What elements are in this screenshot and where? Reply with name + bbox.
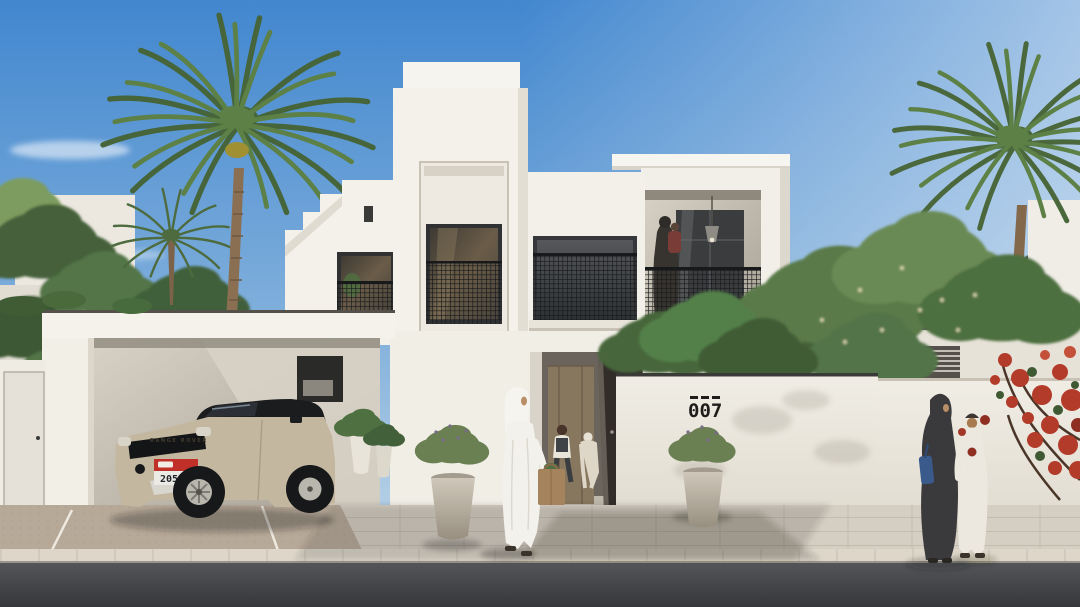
car-shadow	[110, 508, 334, 532]
carport-beam	[42, 312, 395, 338]
carport-pillar	[42, 338, 94, 512]
child-head	[671, 223, 679, 231]
wall-coping	[616, 373, 878, 377]
house-number-sign: 007	[688, 396, 722, 422]
tower-window	[426, 224, 502, 324]
sandal	[521, 551, 532, 556]
entry-wall: 007	[616, 373, 878, 515]
center-juliet-balcony	[529, 236, 641, 331]
door-handle	[36, 436, 40, 440]
side-mirror	[290, 416, 302, 423]
headlight-right	[196, 427, 211, 436]
headlight-left	[118, 437, 131, 446]
scene-canvas: 007	[0, 0, 1080, 607]
left-boundary-wall	[0, 360, 46, 512]
architectural-rendering: 007	[0, 0, 1080, 607]
villa-tower	[393, 62, 528, 352]
side-door	[4, 372, 44, 512]
window-railing-mesh	[337, 282, 395, 314]
road	[0, 562, 1080, 607]
sandal	[505, 546, 516, 551]
left-wing-window	[337, 252, 395, 314]
palm-dates	[225, 142, 249, 158]
grocery-bag	[538, 463, 565, 505]
face	[521, 397, 527, 406]
child-body	[668, 231, 681, 253]
face	[943, 404, 949, 412]
number-dashes	[690, 396, 720, 399]
front-wheel	[173, 466, 225, 518]
house-number: 007	[688, 400, 722, 422]
balcony-railing	[533, 254, 637, 322]
fog-lamp	[135, 464, 145, 474]
hood-brand-text: RANGE ROVER	[150, 438, 208, 444]
window-railing-mesh	[426, 262, 502, 324]
wall-lamp	[364, 206, 373, 222]
head	[967, 418, 977, 428]
rear-wheel	[286, 465, 334, 513]
vent-window	[297, 356, 343, 402]
